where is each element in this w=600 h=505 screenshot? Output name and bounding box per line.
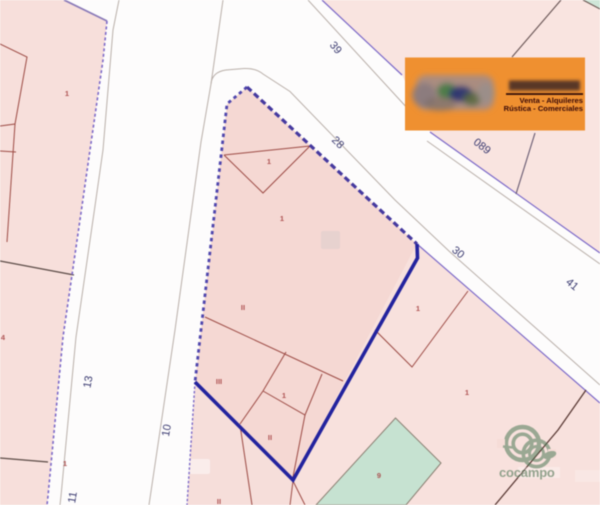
svg-text:1: 1 — [280, 214, 284, 223]
svg-text:9: 9 — [377, 471, 381, 480]
svg-text:1: 1 — [282, 391, 286, 400]
svg-text:1: 1 — [63, 459, 67, 468]
svg-text:1: 1 — [465, 388, 469, 397]
svg-text:10: 10 — [160, 423, 174, 437]
svg-text:Rústica - Comerciales: Rústica - Comerciales — [504, 104, 583, 113]
svg-text:1: 1 — [416, 304, 420, 313]
svg-text:1: 1 — [65, 89, 69, 98]
svg-text:II: II — [241, 303, 245, 312]
svg-text:13: 13 — [82, 375, 96, 389]
svg-text:cocampo: cocampo — [499, 465, 555, 480]
svg-text:II: II — [268, 433, 272, 442]
svg-text:II: II — [217, 497, 221, 505]
svg-text:11: 11 — [66, 491, 80, 504]
svg-text:1: 1 — [267, 157, 271, 166]
svg-text:III: III — [216, 377, 222, 386]
